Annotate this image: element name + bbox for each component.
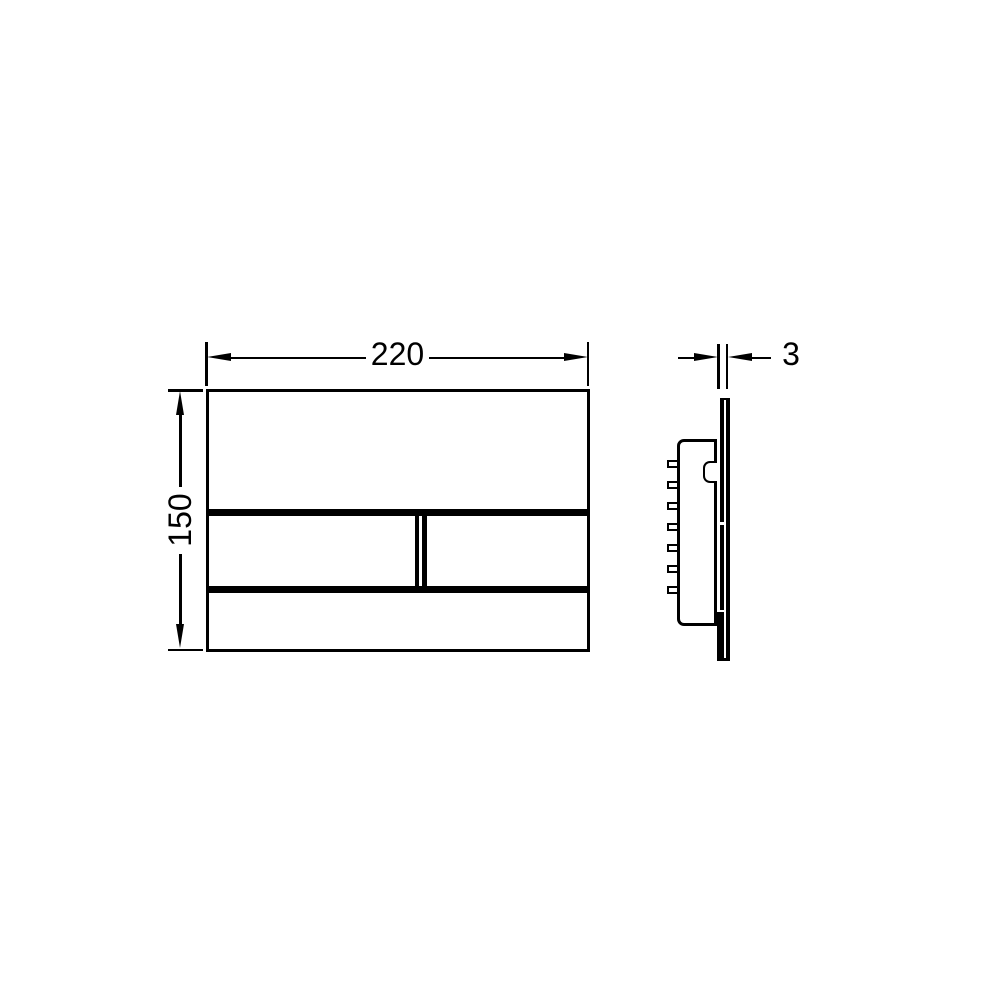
dim-thickness-line-right xyxy=(749,357,771,360)
dim-thickness-extension-right xyxy=(726,344,729,389)
technical-drawing-canvas: 220 150 3 xyxy=(0,0,1000,1000)
dim-thickness-extension-left xyxy=(717,344,720,389)
dim-thickness: 3 xyxy=(0,0,1000,1000)
arrowhead-right-icon xyxy=(694,353,718,361)
dim-thickness-label: 3 xyxy=(775,338,807,370)
